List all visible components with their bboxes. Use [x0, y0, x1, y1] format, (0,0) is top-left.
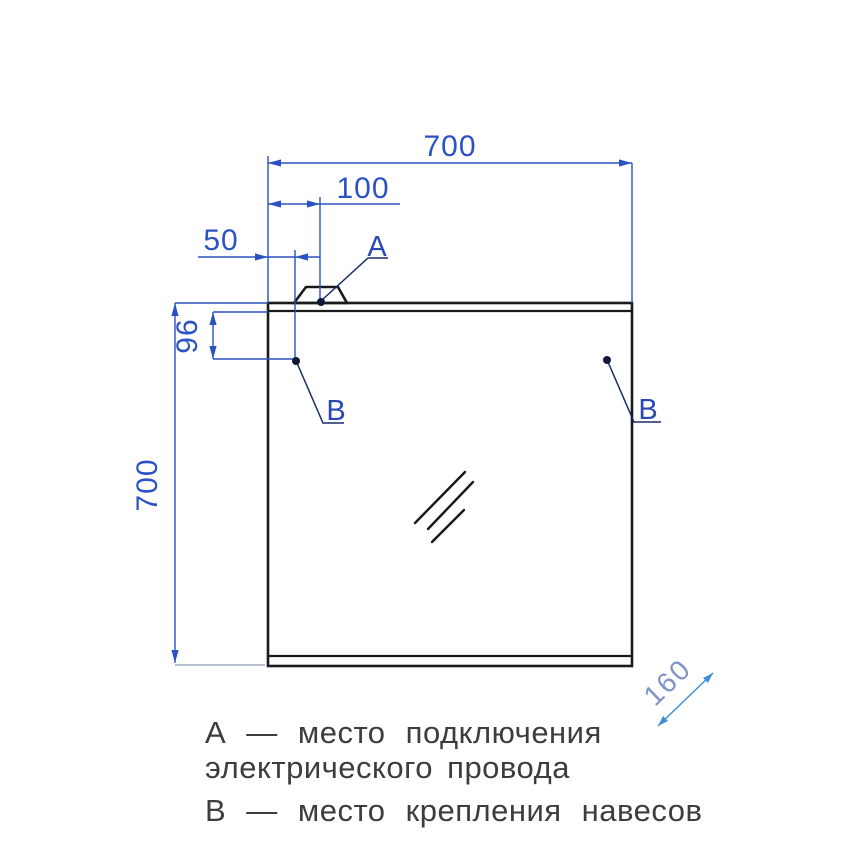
marker-b-left-label: В	[326, 395, 345, 427]
arrow-down-icon	[171, 650, 178, 663]
arrow-up-icon	[209, 312, 216, 325]
dim-top-width-value: 700	[423, 130, 476, 163]
arrow-left-icon	[268, 159, 281, 166]
mirror-glare-strokes	[415, 472, 473, 542]
legend-line-a-2: электрического провода	[205, 750, 570, 785]
extension-lines	[175, 156, 632, 665]
arrow-left-icon	[268, 200, 281, 207]
dim-b-vertical-offset: 96	[171, 312, 296, 359]
arrow-left-icon	[295, 253, 308, 260]
arrow-down-icon	[209, 346, 216, 359]
mirror-cabinet-dimension-drawing: 700 100 50 96	[0, 0, 864, 864]
point-b-right-dot	[603, 356, 611, 364]
callout-a: А	[317, 231, 388, 306]
dim-top-width: 700	[268, 130, 632, 167]
dim-a-offset-value: 100	[336, 172, 389, 205]
cabinet-front-panel	[268, 303, 632, 666]
dim-depth: 160	[638, 653, 713, 726]
arrow-up-icon	[171, 303, 178, 316]
arrow-right-icon	[307, 200, 320, 207]
legend: А — место подключения электрического про…	[205, 715, 702, 828]
dim-b-vertical-offset-value: 96	[171, 318, 204, 353]
dim-b-offset-value: 50	[203, 224, 238, 257]
point-b-left-dot	[292, 357, 300, 365]
marker-a-label: А	[367, 231, 387, 263]
legend-line-a-1: А — место подключения	[205, 715, 602, 750]
leader-line-a	[322, 258, 388, 300]
arrow-right-icon	[619, 159, 632, 166]
dim-depth-value: 160	[638, 653, 697, 712]
legend-line-b: В — место крепления навесов	[205, 793, 702, 828]
dim-left-height: 700	[131, 303, 179, 663]
marker-b-right-label: В	[638, 394, 657, 426]
dim-left-height-value: 700	[131, 458, 164, 511]
cabinet-outline	[268, 287, 632, 666]
technical-drawing-page: 700 100 50 96	[0, 0, 864, 864]
dim-b-offset: 50	[198, 224, 320, 261]
point-a-dot	[317, 298, 325, 306]
arrow-right-icon	[255, 253, 268, 260]
dim-a-offset: 100	[268, 172, 400, 208]
callout-b-left: В	[292, 357, 346, 427]
